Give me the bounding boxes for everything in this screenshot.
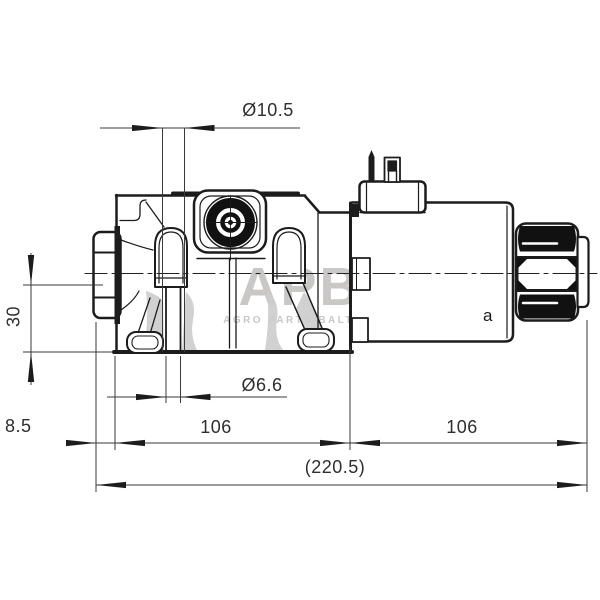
connector-pins: [369, 150, 401, 182]
valve-line-drawing: [0, 0, 600, 600]
electrical-connector: [360, 182, 426, 213]
dim-overall-length: (220.5): [295, 457, 375, 478]
dim-counterbore-diameter: Ø10.5: [238, 100, 298, 121]
right-port-slot: [273, 228, 305, 283]
technical-drawing-canvas: APB AGRO PARTS BALTIJA: [0, 0, 600, 600]
dim-through-hole-diameter: Ø6.6: [236, 375, 288, 396]
dim-axis-height: 30: [4, 295, 25, 339]
dim-solenoid-length: 106: [440, 417, 484, 438]
dim-body-length: 106: [194, 417, 238, 438]
solenoid-side-label: a: [483, 306, 493, 326]
dim-left-offset: 8.5: [5, 416, 32, 437]
end-disc: [578, 237, 589, 307]
